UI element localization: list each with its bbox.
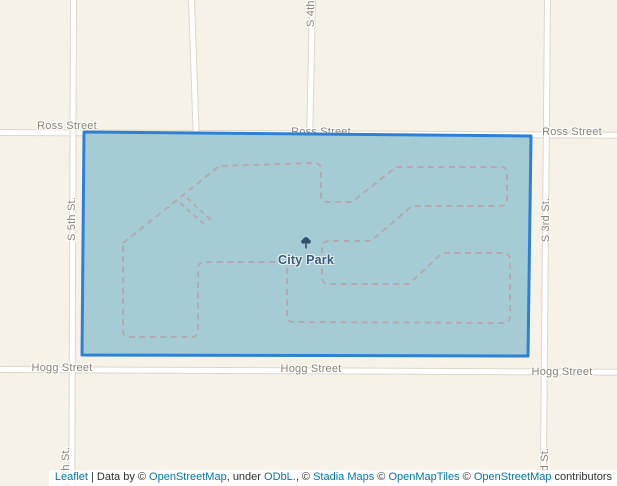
openmaptiles-link[interactable]: OpenMapTiles — [388, 471, 459, 483]
leaflet-link[interactable]: Leaflet — [55, 471, 88, 483]
attribution-bar: Leaflet | Data by © OpenStreetMap, under… — [49, 470, 617, 486]
attribution-text: | Data by © — [88, 471, 149, 483]
openstreetmap-link-2[interactable]: OpenStreetMap — [474, 471, 552, 483]
attribution-text: , under — [227, 471, 264, 483]
stadia-maps-link[interactable]: Stadia Maps — [313, 471, 374, 483]
attribution-text: , © — [296, 471, 313, 483]
openstreetmap-link-1[interactable]: OpenStreetMap — [149, 471, 227, 483]
attribution-text: © — [374, 471, 388, 483]
tree-icon — [300, 236, 312, 250]
map-canvas[interactable]: Ross Street Ross Street Ross Street Hogg… — [0, 0, 617, 486]
odbl-link[interactable]: ODbL. — [264, 471, 296, 483]
attribution-text: contributors — [551, 471, 612, 483]
attribution-text: © — [460, 471, 474, 483]
poi-label-city-park: City Park — [278, 253, 334, 267]
